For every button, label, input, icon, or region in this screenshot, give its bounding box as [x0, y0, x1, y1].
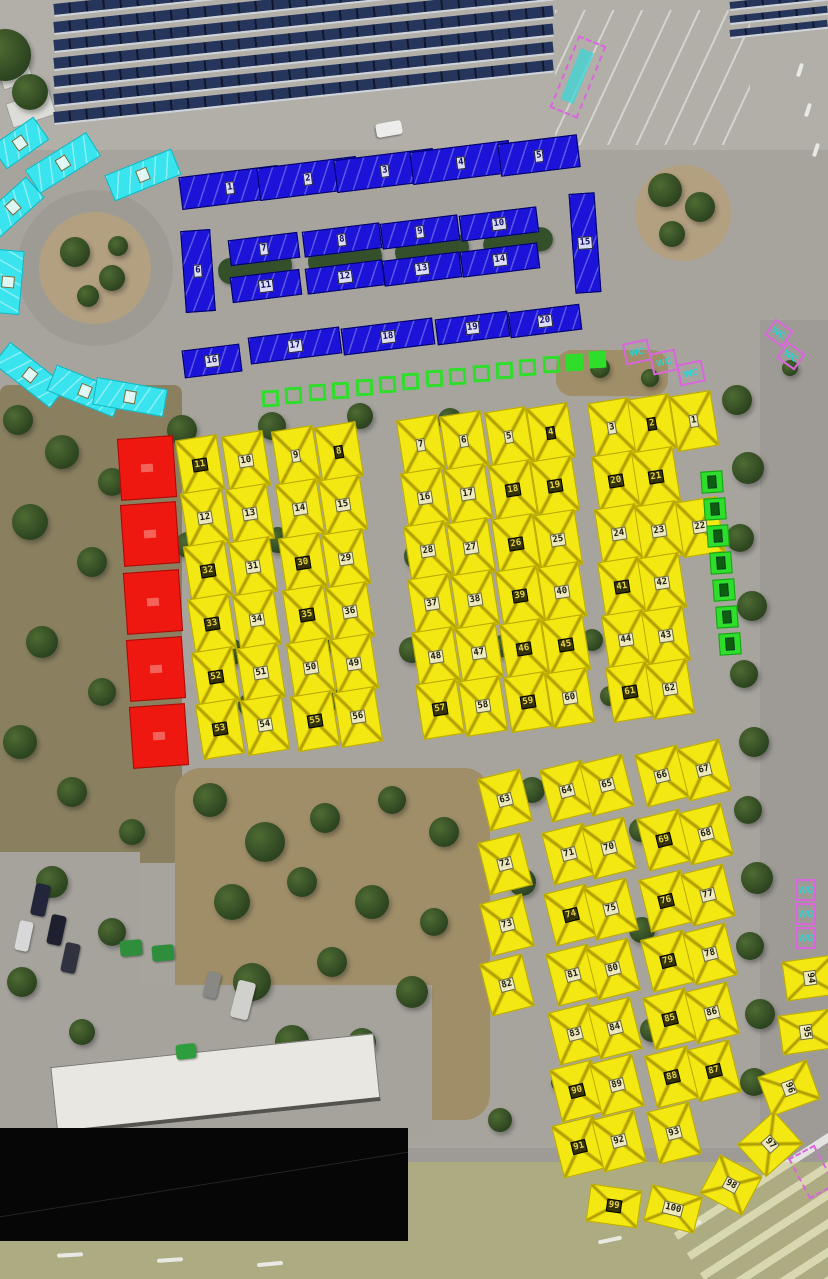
- stall-yellow-15: 15: [318, 474, 368, 536]
- marker-green-outline-8: [425, 369, 443, 387]
- stall-green-label: [710, 502, 720, 516]
- stall-yellow-label: 59: [520, 694, 537, 709]
- stall-blue-label: 18: [380, 329, 396, 344]
- tree: [119, 819, 145, 845]
- stall-cyan-label: [11, 134, 28, 152]
- stall-yellow-label: 16: [417, 490, 434, 505]
- marker-green-outline-14: [565, 353, 583, 371]
- stall-red-4: [126, 636, 186, 702]
- stall-blue-label: 19: [464, 321, 480, 336]
- tree: [57, 777, 87, 807]
- stall-yellow-label: 99: [606, 1199, 623, 1214]
- stall-blue-label: 3: [380, 163, 391, 177]
- tree: [734, 796, 762, 824]
- tree: [726, 524, 754, 552]
- marker-green-outline-3: [308, 383, 326, 401]
- stall-yellow-label: 64: [558, 783, 576, 799]
- stall-cyan-3: [104, 149, 181, 202]
- marker-wc-7: WC: [796, 879, 816, 901]
- stall-blue-label: 10: [491, 217, 507, 232]
- stall-yellow-label: 80: [604, 961, 622, 977]
- stall-yellow-label: 88: [663, 1069, 681, 1085]
- stall-yellow-56: 56: [333, 686, 383, 748]
- tree: [45, 435, 79, 469]
- marker-wc-label: WC: [799, 934, 814, 943]
- tree: [355, 885, 389, 919]
- stall-green-5: [712, 578, 735, 601]
- stall-yellow-label: 43: [658, 628, 675, 643]
- marker-green-outline-4: [331, 381, 349, 399]
- stall-yellow-label: 26: [508, 536, 525, 551]
- stall-yellow-label: 68: [697, 826, 715, 842]
- roundabout-right-island: [635, 165, 731, 261]
- stall-yellow-label: 24: [611, 526, 628, 541]
- stall-yellow-label: 86: [703, 1005, 721, 1021]
- stall-yellow-label: 56: [350, 709, 367, 724]
- stall-yellow-label: 3: [606, 421, 617, 435]
- tree: [317, 947, 347, 977]
- stall-yellow-label: 47: [471, 645, 488, 660]
- stall-yellow-label: 12: [197, 510, 214, 525]
- stall-blue-label: 1: [225, 180, 236, 194]
- stall-blue-17: 17: [248, 326, 343, 364]
- stall-yellow-label: 2: [646, 417, 657, 431]
- stall-yellow-label: 11: [192, 457, 209, 472]
- stall-yellow-label: 41: [614, 579, 631, 594]
- stall-yellow-58: 58: [458, 675, 508, 737]
- marker-wc-label: WC: [770, 325, 787, 341]
- stall-yellow-label: 50: [303, 660, 320, 675]
- stall-yellow-label: 1: [688, 414, 699, 428]
- stall-yellow-label: 55: [307, 713, 324, 728]
- vehicle: [119, 939, 142, 957]
- stall-yellow-label: 69: [655, 832, 673, 848]
- stall-yellow-label: 82: [498, 977, 516, 993]
- stall-yellow-label: 32: [200, 563, 217, 578]
- stall-yellow-label: 9: [290, 449, 301, 463]
- tree: [488, 1108, 512, 1132]
- stall-blue-label: 6: [193, 264, 203, 278]
- redacted-area: [0, 1128, 408, 1241]
- stall-yellow-label: 46: [516, 641, 533, 656]
- stall-yellow-label: 74: [562, 907, 580, 923]
- marker-green-outline-12: [518, 358, 536, 376]
- tree: [396, 976, 428, 1008]
- stall-yellow-1: 1: [669, 390, 719, 452]
- stall-red-1: [117, 435, 177, 501]
- stall-blue-label: 4: [456, 155, 467, 169]
- stall-yellow-label: 40: [554, 584, 571, 599]
- stall-yellow-label: 18: [505, 482, 522, 497]
- tree: [736, 932, 764, 960]
- stall-blue-label: 9: [415, 225, 426, 239]
- stall-blue-16: 16: [182, 344, 243, 379]
- stall-red-3: [123, 569, 183, 635]
- stall-green-6: [715, 605, 738, 628]
- stall-yellow-60: 60: [545, 667, 595, 729]
- stall-yellow-label: 95: [799, 1024, 814, 1041]
- stall-green-label: [722, 610, 732, 624]
- vehicle: [151, 944, 174, 962]
- tree: [429, 817, 459, 847]
- tree: [99, 265, 125, 291]
- tree: [3, 405, 33, 435]
- stall-yellow-label: 96: [780, 1079, 797, 1097]
- marker-green-outline-5: [355, 378, 373, 396]
- stall-yellow-label: 45: [558, 637, 575, 652]
- tree: [739, 727, 769, 757]
- stall-blue-18: 18: [341, 317, 436, 355]
- tree: [245, 822, 285, 862]
- stall-yellow-label: 54: [257, 717, 274, 732]
- stall-yellow-label: 34: [249, 612, 266, 627]
- stall-yellow-label: 21: [648, 469, 665, 484]
- roundabout-left-island: [39, 212, 151, 324]
- stall-yellow-label: 91: [570, 1139, 588, 1155]
- green-machine: [175, 1043, 196, 1060]
- tree: [420, 908, 448, 936]
- stall-yellow-label: 20: [608, 473, 625, 488]
- stall-cyan-label: [4, 198, 22, 216]
- stall-yellow-label: 23: [651, 523, 668, 538]
- stall-yellow-label: 52: [208, 669, 225, 684]
- stall-yellow-19: 19: [530, 455, 580, 517]
- stall-yellow-label: 49: [346, 656, 363, 671]
- marker-wc-label: WC: [683, 367, 700, 379]
- stall-yellow-label: 39: [512, 588, 529, 603]
- marker-wc-9: WC: [796, 927, 816, 949]
- stall-cyan-label: [135, 167, 151, 184]
- tree: [26, 626, 58, 658]
- stall-yellow-label: 78: [701, 946, 719, 962]
- stall-yellow-label: 19: [547, 478, 564, 493]
- stall-yellow-label: 71: [560, 846, 578, 862]
- stall-yellow-label: 66: [653, 768, 671, 784]
- tree: [12, 74, 48, 110]
- stall-blue-label: 11: [258, 279, 274, 294]
- stall-yellow-label: 87: [705, 1063, 723, 1079]
- tree: [12, 504, 48, 540]
- stall-blue-6: 6: [180, 229, 216, 313]
- stall-yellow-label: 90: [568, 1083, 586, 1099]
- stall-yellow-label: 85: [661, 1011, 679, 1027]
- marker-green-outline-13: [542, 355, 560, 373]
- stall-yellow-label: 72: [496, 856, 514, 872]
- stall-yellow-14: 14: [275, 478, 325, 540]
- stall-yellow-label: 25: [550, 532, 567, 547]
- marker-wc-label: WC: [629, 346, 646, 358]
- stall-yellow-label: 36: [342, 604, 359, 619]
- marker-green-outline-11: [495, 361, 513, 379]
- stall-green-1: [700, 470, 723, 493]
- marker-wc-label: WC: [656, 356, 673, 368]
- marker-wc-3: WC: [649, 349, 679, 376]
- stall-green-label: [716, 556, 726, 570]
- stall-yellow-55: 55: [290, 690, 340, 752]
- stall-yellow-95: 95: [777, 1009, 828, 1056]
- stall-yellow-label: 10: [238, 453, 255, 468]
- stall-cyan-label: [54, 154, 71, 171]
- tree: [69, 1019, 95, 1045]
- stall-yellow-label: 51: [253, 665, 270, 680]
- stall-green-7: [718, 632, 741, 655]
- stall-blue-label: 16: [204, 354, 220, 369]
- stall-yellow-label: 60: [562, 690, 579, 705]
- stall-yellow-label: 4: [545, 426, 556, 440]
- stall-cyan-label: [1, 275, 15, 288]
- stall-red-label: [147, 598, 160, 607]
- tree: [730, 660, 758, 688]
- stall-yellow-label: 27: [463, 540, 480, 555]
- stall-yellow-label: 30: [295, 555, 312, 570]
- tree: [287, 867, 317, 897]
- stall-yellow-label: 37: [424, 596, 441, 611]
- stall-yellow-label: 42: [654, 575, 671, 590]
- tree: [648, 173, 682, 207]
- stall-cyan-5: [0, 249, 25, 315]
- stall-blue-label: 20: [537, 314, 553, 329]
- stall-cyan-label: [77, 383, 93, 400]
- stall-yellow-label: 13: [242, 506, 259, 521]
- tree: [745, 999, 775, 1029]
- tree: [3, 725, 37, 759]
- stall-yellow-53: 53: [195, 698, 245, 760]
- marker-green-outline-1: [261, 389, 279, 407]
- stall-green-4: [709, 551, 732, 574]
- stall-yellow-label: 84: [606, 1020, 624, 1036]
- stall-yellow-label: 76: [657, 893, 675, 909]
- stall-yellow-label: 61: [622, 684, 639, 699]
- marker-wc-label: WC: [799, 910, 814, 919]
- tree: [378, 786, 406, 814]
- marker-green-outline-10: [472, 364, 490, 382]
- tree: [7, 967, 37, 997]
- stall-blue-15: 15: [569, 192, 602, 294]
- tree: [77, 547, 107, 577]
- stall-blue-label: 8: [337, 233, 348, 247]
- marker-green-outline-9: [448, 367, 466, 385]
- stall-yellow-label: 98: [721, 1176, 740, 1194]
- stall-yellow-99: 99: [586, 1184, 643, 1229]
- stall-green-label: [707, 475, 717, 489]
- stall-yellow-label: 67: [695, 762, 713, 778]
- stall-green-3: [706, 524, 729, 547]
- stall-blue-label: 13: [414, 262, 430, 277]
- stall-yellow-label: 8: [333, 445, 344, 459]
- stall-yellow-62: 62: [645, 658, 695, 720]
- stall-red-2: [120, 501, 180, 567]
- stall-yellow-label: 7: [415, 438, 426, 452]
- stall-yellow-label: 89: [608, 1077, 626, 1093]
- stall-blue-label: 15: [577, 236, 593, 250]
- stall-yellow-21: 21: [631, 446, 681, 508]
- stall-blue-label: 7: [259, 242, 270, 256]
- marker-green-outline-6: [378, 375, 396, 393]
- stall-yellow-label: 14: [292, 501, 309, 516]
- stall-yellow-label: 17: [460, 486, 477, 501]
- stall-blue-label: 2: [303, 171, 314, 185]
- stall-yellow-label: 100: [662, 1200, 685, 1218]
- stall-green-2: [703, 497, 726, 520]
- tree: [659, 221, 685, 247]
- stall-yellow-label: 28: [420, 543, 437, 558]
- stall-yellow-label: 97: [760, 1134, 780, 1154]
- stall-yellow-label: 6: [458, 434, 469, 448]
- marker-wc-label: WC: [799, 886, 814, 895]
- stall-yellow-label: 62: [662, 681, 679, 696]
- marker-wc-8: WC: [796, 903, 816, 925]
- stall-red-label: [150, 665, 163, 674]
- stall-blue-14: 14: [460, 242, 541, 277]
- tree: [732, 452, 764, 484]
- stall-yellow-label: 70: [600, 840, 618, 856]
- stall-blue-20: 20: [508, 304, 583, 339]
- stall-yellow-label: 31: [245, 559, 262, 574]
- stall-green-label: [719, 583, 729, 597]
- stall-cyan-label: [123, 390, 137, 405]
- stall-yellow-label: 33: [204, 616, 221, 631]
- stall-blue-label: 5: [534, 148, 545, 162]
- stall-yellow-label: 44: [618, 632, 635, 647]
- stall-blue-13: 13: [382, 251, 463, 286]
- marker-green-outline-15: [588, 350, 606, 368]
- stall-yellow-label: 58: [475, 698, 492, 713]
- tree: [88, 678, 116, 706]
- stall-yellow-54: 54: [240, 694, 290, 756]
- stall-yellow-label: 38: [467, 592, 484, 607]
- stall-yellow-label: 29: [338, 551, 355, 566]
- stall-blue-19: 19: [434, 311, 510, 346]
- tree: [60, 237, 90, 267]
- stall-yellow-label: 5: [503, 430, 514, 444]
- stall-yellow-57: 57: [415, 678, 465, 740]
- tree: [685, 192, 715, 222]
- marker-wc-label: WC: [782, 348, 799, 364]
- stall-yellow-label: 35: [299, 607, 316, 622]
- stall-yellow-label: 77: [699, 887, 717, 903]
- tree: [108, 236, 128, 256]
- stall-green-label: [725, 637, 735, 651]
- tree: [310, 803, 340, 833]
- stall-yellow-label: 83: [566, 1026, 584, 1042]
- stall-yellow-94: 94: [781, 955, 828, 1002]
- stall-blue-label: 17: [287, 338, 303, 353]
- stall-blue-label: 12: [337, 270, 353, 285]
- stall-cyan-label: [21, 366, 38, 384]
- stall-yellow-label: 94: [803, 970, 818, 987]
- stall-yellow-label: 63: [496, 792, 514, 808]
- stall-yellow-label: 53: [212, 721, 229, 736]
- stall-red-5: [129, 703, 189, 769]
- tree: [193, 783, 227, 817]
- stall-green-label: [713, 529, 723, 543]
- stall-yellow-label: 79: [659, 953, 677, 969]
- stall-yellow-label: 75: [602, 901, 620, 917]
- aerial-market-map: 1110987654321121314151617181920213231302…: [0, 0, 828, 1279]
- tree: [741, 862, 773, 894]
- stall-yellow-label: 93: [665, 1125, 683, 1141]
- stall-yellow-17: 17: [443, 463, 493, 525]
- tree: [77, 285, 99, 307]
- stall-red-label: [153, 732, 166, 741]
- tree: [737, 591, 767, 621]
- stall-blue-label: 14: [492, 253, 508, 268]
- marker-wc-4: WC: [676, 360, 706, 387]
- stall-yellow-label: 15: [335, 497, 352, 512]
- marker-green-outline-2: [284, 386, 302, 404]
- stall-yellow-label: 57: [432, 701, 449, 716]
- tree: [214, 884, 250, 920]
- tree: [722, 385, 752, 415]
- stall-yellow-label: 81: [564, 967, 582, 983]
- stall-yellow-label: 65: [598, 777, 616, 793]
- stall-yellow-label: 48: [428, 649, 445, 664]
- stall-red-label: [141, 464, 154, 473]
- stall-yellow-label: 73: [498, 917, 516, 933]
- stall-red-label: [144, 530, 157, 539]
- marker-green-outline-7: [401, 372, 419, 390]
- stall-yellow-label: 92: [610, 1133, 628, 1149]
